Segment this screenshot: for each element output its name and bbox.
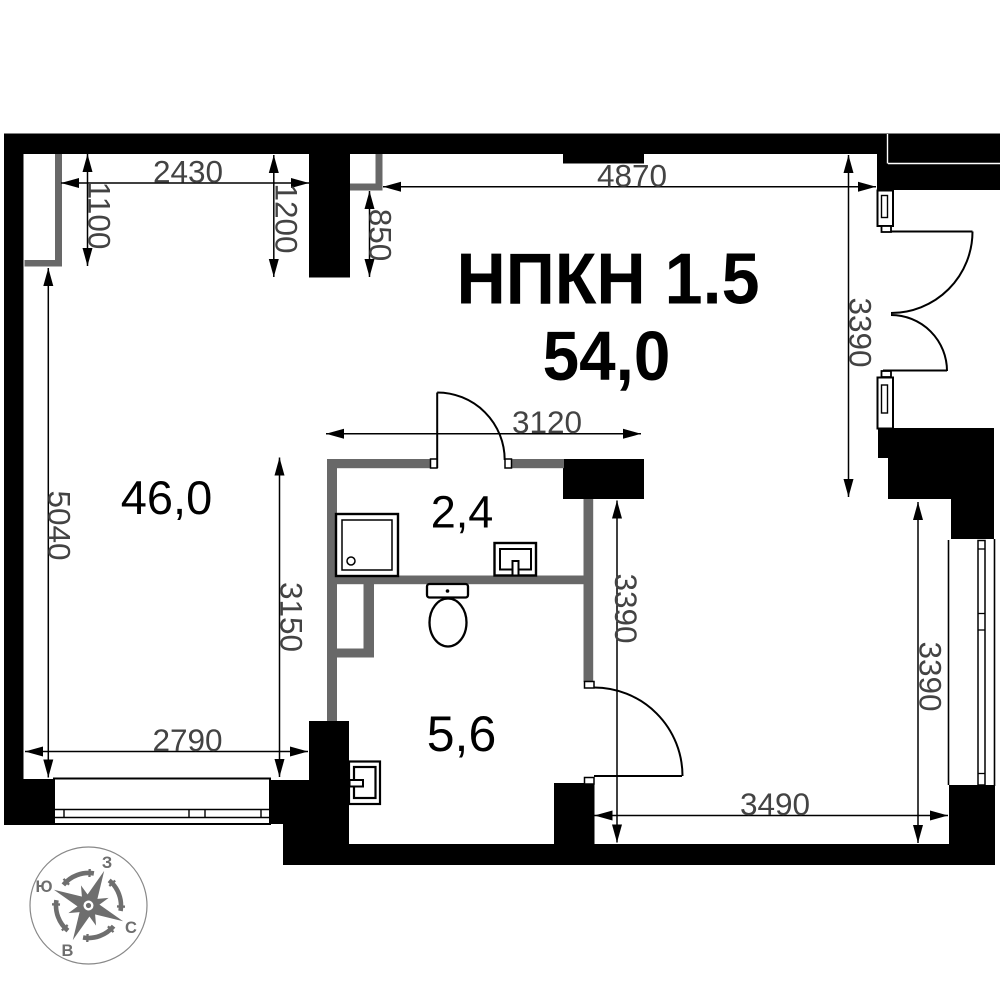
svg-text:4870: 4870: [597, 157, 667, 193]
svg-text:2430: 2430: [153, 153, 223, 189]
svg-text:Ю: Ю: [35, 878, 52, 896]
svg-text:НПКН 1.5: НПКН 1.5: [456, 238, 759, 319]
svg-text:3120: 3120: [512, 404, 582, 440]
svg-text:С: С: [125, 919, 137, 937]
svg-text:850: 850: [363, 209, 399, 262]
svg-text:2,4: 2,4: [431, 487, 494, 538]
svg-text:1200: 1200: [269, 183, 305, 253]
svg-text:3150: 3150: [274, 582, 310, 652]
svg-text:3390: 3390: [608, 573, 644, 643]
svg-text:5,6: 5,6: [427, 706, 497, 762]
svg-text:В: В: [62, 942, 74, 960]
svg-text:54,0: 54,0: [543, 318, 671, 395]
svg-text:3390: 3390: [843, 297, 879, 367]
svg-text:3490: 3490: [740, 786, 810, 822]
svg-text:3390: 3390: [913, 641, 949, 711]
svg-text:5040: 5040: [42, 490, 78, 560]
svg-text:1100: 1100: [82, 182, 118, 250]
svg-text:З: З: [102, 854, 112, 872]
svg-text:2790: 2790: [152, 722, 222, 758]
svg-text:46,0: 46,0: [121, 471, 212, 524]
